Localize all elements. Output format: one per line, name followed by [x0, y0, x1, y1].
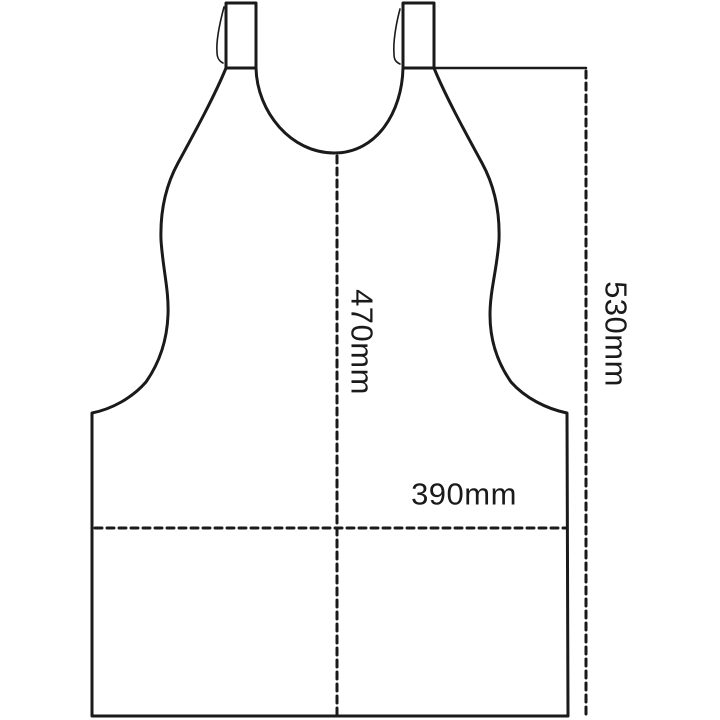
apron-dimension-diagram: 470mm 530mm 390mm	[0, 0, 720, 720]
dimension-label-530mm: 530mm	[601, 281, 632, 387]
neckline	[256, 68, 403, 153]
dimension-label-470mm: 470mm	[347, 289, 378, 395]
right-strap	[403, 3, 434, 68]
left-strap-tie-line	[217, 7, 224, 63]
apron-body-outline	[92, 68, 568, 716]
right-strap-tie-line	[394, 9, 400, 64]
left-strap	[226, 3, 256, 68]
dimension-label-390mm: 390mm	[411, 479, 517, 510]
